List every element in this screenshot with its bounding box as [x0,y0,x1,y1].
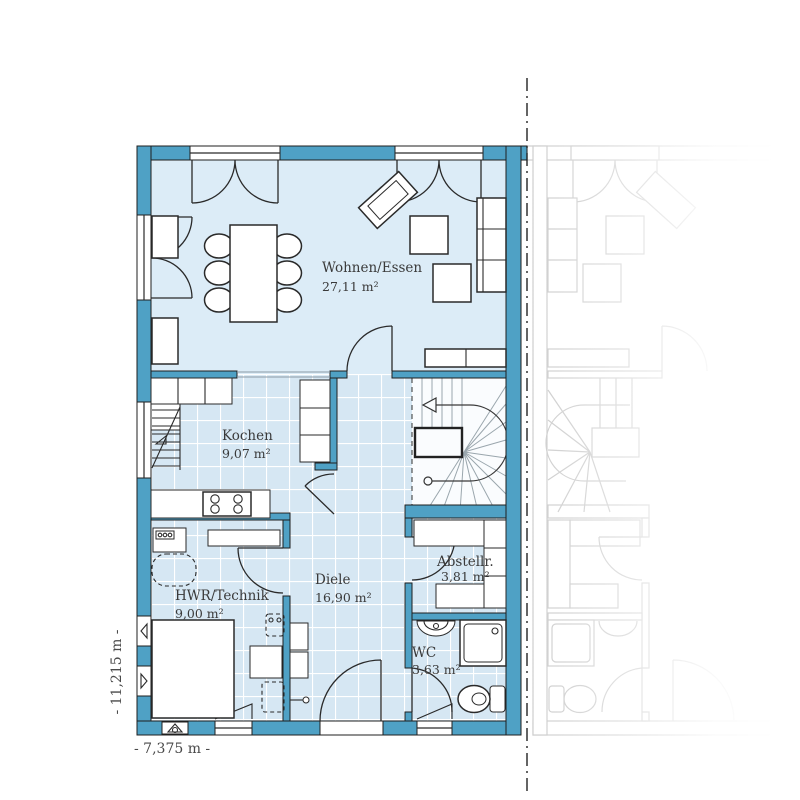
dimension-width: - 7,375 m - [134,741,210,757]
kitchen-counter-top [151,378,232,404]
floor-plan: Wohnen/Essen 27,11 m² Kochen 9,07 m² Die… [0,0,800,800]
shelf [436,584,484,608]
room-area-wohnen-essen: 27,11 m² [322,279,379,294]
wardrobe [290,652,308,678]
dimension-depth: - 11,215 m - [109,629,125,714]
room-area-kochen: 9,07 m² [222,446,271,461]
room-area-abstellraum: 3,81 m² [441,569,490,584]
dining-table [230,225,277,322]
room-label-kochen: Kochen [222,428,273,444]
armchair [433,264,471,302]
room-label-hwr: HWR/Technik [175,588,270,604]
room-label-abstellraum: Abstellr. [436,554,494,570]
room-area-diele: 16,90 m² [315,590,372,605]
entrance-door [320,721,383,735]
stair-walk-start [424,477,432,485]
shelf [414,520,484,546]
cabinet-left-2 [152,318,178,364]
room-label-wohnen-essen: Wohnen/Essen [322,260,422,276]
stair-eye [415,428,462,457]
hwr-table [250,646,282,678]
dining-chair [205,234,234,258]
room-area-wc: 3,63 m² [412,662,461,677]
cabinet-left-1 [152,216,178,258]
stove [203,492,251,516]
hwr-shelf [208,530,280,546]
dining-chair [205,261,234,285]
party-wall [506,146,521,735]
wardrobe [290,623,308,650]
armchair [410,216,448,254]
dining-chair [205,288,234,312]
room-label-wc: WC [412,645,436,661]
sofa [477,198,506,292]
door-stop-knob [303,697,309,703]
vent-left-1 [137,616,151,646]
kitchen-tall-cabinet [300,380,330,462]
worktop [152,620,234,718]
room-area-hwr: 9,00 m² [175,606,224,621]
vent-left-2 [137,666,151,696]
neighbor-fade-overlay [527,40,800,800]
room-label-diele: Diele [315,572,350,588]
toilet-tank [490,686,505,712]
